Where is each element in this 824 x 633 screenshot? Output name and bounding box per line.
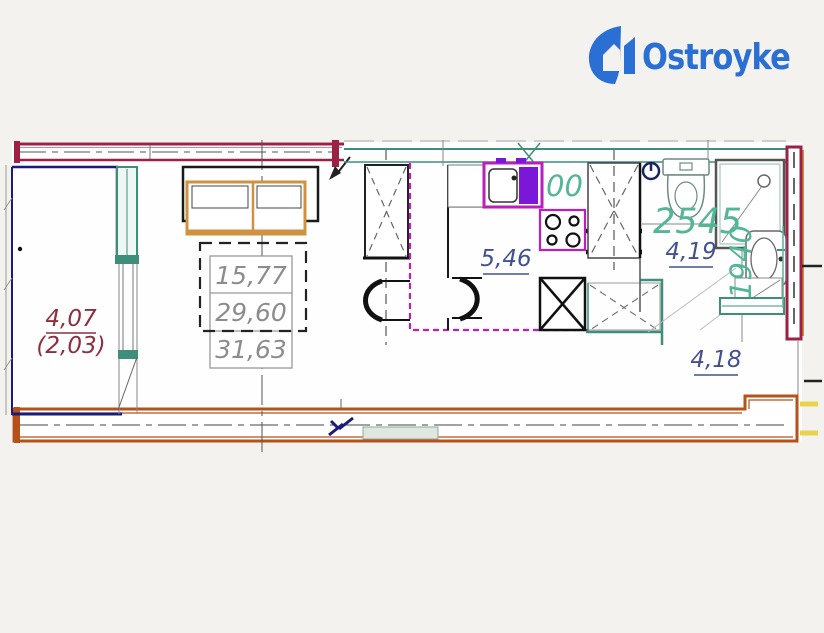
hall-closet [588, 150, 640, 270]
floorplan-page: Ostroyke [0, 0, 824, 633]
brand-logo-icon [589, 26, 635, 84]
dimension-1940-text: 1940 [724, 225, 758, 299]
kitchen-sink [484, 158, 542, 207]
area-row-total: 31,63 [215, 335, 287, 364]
area-table: 15,77 29,60 31,63 [200, 243, 306, 368]
dimension-fragment-text: 00 [546, 169, 583, 203]
kitchen-counter [448, 165, 484, 207]
balcony-label: 4,07 (2,03) [36, 306, 105, 359]
hall-label: 4,18 [690, 347, 741, 375]
area-row-living: 15,77 [215, 261, 287, 290]
kitchen-area-text: 5,46 [480, 246, 531, 272]
kitchen-unit [540, 278, 585, 330]
bathroom-area-text: 4,19 [665, 239, 716, 265]
bathroom-label: 4,19 [665, 239, 716, 267]
balcony-area-text: 4,07 [45, 306, 97, 332]
hall-area-text: 4,18 [690, 347, 741, 373]
power-icon [643, 162, 659, 179]
balcony-area-reduced-text: (2,03) [36, 333, 105, 359]
kitchen-label: 5,46 [480, 246, 531, 274]
area-row-apartment: 29,60 [215, 298, 287, 327]
wardrobe [363, 165, 410, 258]
stove [540, 210, 585, 250]
floorplan-svg: Ostroyke [0, 0, 824, 633]
brand-logo-text: Ostroyke [642, 37, 790, 78]
brand-logo: Ostroyke [589, 26, 790, 84]
